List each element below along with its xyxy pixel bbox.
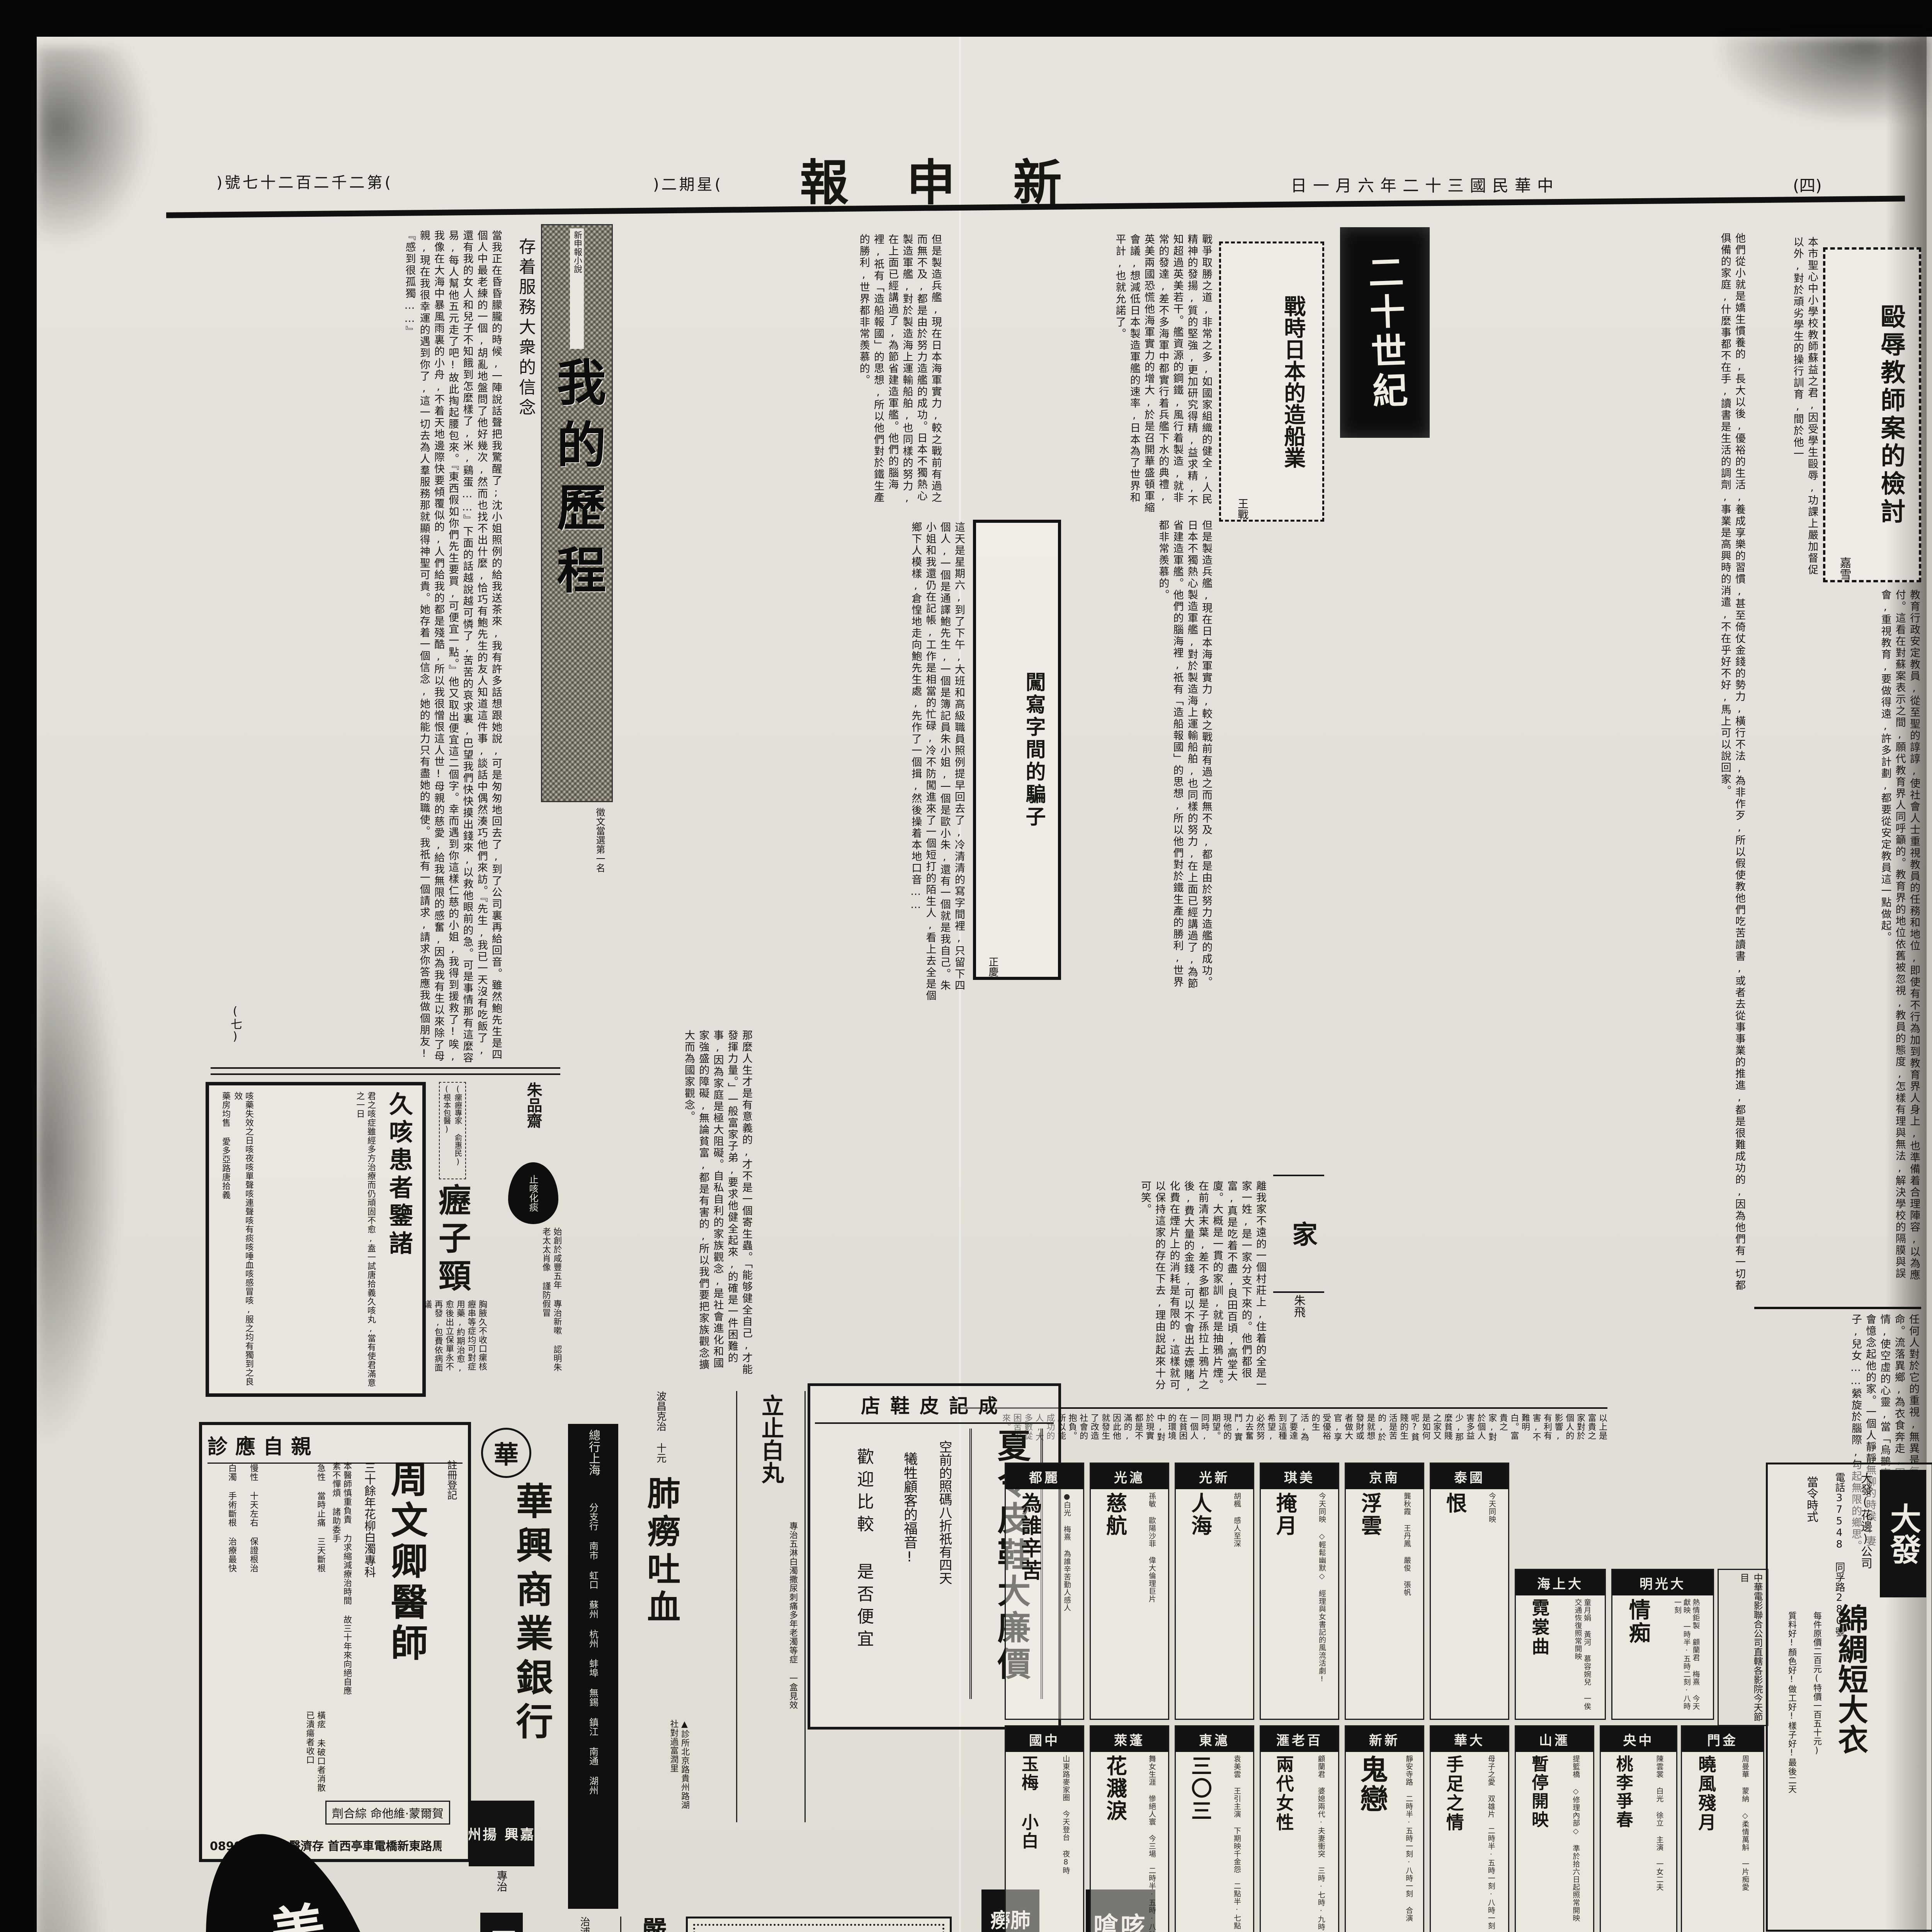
essay-title-jia: 家	[1273, 1175, 1324, 1293]
ad-note: 本醫師慎重負責 力求縮減療治時間 故三十年來向絕自應 素不憚煩 諸助委手	[286, 1462, 352, 1701]
ad-line: 空前的照碼八折祇有四天	[927, 1440, 954, 1687]
ad-line: 質料好!顏色好!做工好!樣子好!最後二天	[1776, 1611, 1797, 1897]
cinema-ad-penglai: 萊蓬 舞女生涯 慘絕人寰 今三場 二時半·五時·八時半花濺淚	[1090, 1725, 1169, 1932]
theater-name-badge: 光滬	[1091, 1464, 1168, 1489]
cinema-ad-lidu: 都麗 ●白光 梅熹 為誰辛苦勤人感人為誰辛苦	[1005, 1463, 1084, 1720]
novel-title: 我的歷程	[541, 357, 613, 801]
theater-name-badge: 明光大	[1612, 1570, 1713, 1595]
ad-yan-acupuncture: 嚴針灸 瘋科 先生四代醫瘋實驗確鑿 發百中祖傳按穴搜風	[623, 1917, 681, 1932]
ad-pre: 專治	[494, 1870, 509, 1913]
theater-name-badge: 新新	[1346, 1726, 1423, 1752]
cinema-ad-huishan: 山滙 提籃橋 ◇修理內部◇ 準於拾六日起照常開映暫停開映	[1515, 1725, 1594, 1932]
product-name: 綿綢短大衣	[1826, 1604, 1872, 1874]
ad-header: 診應自親	[207, 1430, 463, 1464]
theater-name-badge: 都麗	[1006, 1464, 1083, 1489]
doctor-specialty: 三十餘年花柳白濁專科	[358, 1462, 377, 1701]
cinema-ad-broadway: 滙老百 顧蘭君 婆媳兩代·夫妻衝突 三時·七時·九時一刻兩代女性	[1260, 1725, 1339, 1932]
cinema-ad-meiqi: 琪美 今天同映 ◇輕鬆幽默◇ 經理與女書記的風流活劇!掩月	[1260, 1463, 1339, 1720]
installment-marker: (七)	[220, 1005, 243, 1051]
bank-branch-strip: 總行上海 分支行 南市 虹口 蘇州 杭州 蚌埠 無錫 鎮江 南通 湖州	[568, 1424, 618, 1909]
theater-name-badge: 東滬	[1176, 1726, 1253, 1752]
film-note: 山東路麥家圈 今天登台 夜8時	[1061, 1755, 1070, 1932]
leaf-logo-text: 止咳化痰	[526, 1175, 540, 1212]
cinema-ad-guotai: 泰國 今天同映恨	[1430, 1463, 1509, 1720]
film-title: 桃李爭春	[1613, 1755, 1632, 1932]
essay-jia-body: 離我家不遠的一個村莊上,住着的全是一家一姓,是一家分支下來的。他們都很富,真是吃…	[1059, 1180, 1267, 1401]
film-title: 兩代女性	[1274, 1755, 1294, 1932]
product-name: 美迪肝片	[251, 1898, 364, 1932]
theater-name-badge: 華大	[1431, 1726, 1508, 1752]
film-chain-program-note: 中華電影聯合公司直轄各影院今天節目	[1718, 1569, 1769, 1726]
film-title: 玉梅 小白	[1019, 1755, 1038, 1932]
theater-name-badge: 光新	[1176, 1464, 1253, 1489]
ad-title: 癧子頸	[429, 1183, 476, 1297]
article-lead: 本市聖心中小學校教師蘇益之君,因受學生毆辱,功課上嚴加督促以外,對於頑劣學生的操…	[1757, 236, 1819, 577]
cinema-ad-xinguang: 光新 胡楓 感人至深人海	[1175, 1463, 1254, 1720]
column-divider	[1754, 1307, 1921, 1309]
film-title: 暫停開映	[1529, 1755, 1548, 1932]
ad-line: 犧牲顧客的福音!	[892, 1452, 919, 1668]
century-graphic-panel: 二十世紀	[1340, 227, 1430, 438]
film-title: 浮雲	[1358, 1492, 1381, 1716]
article-body: 教育行政安定教員,從至聖的諄諄,使社會人士重視教員的任務和地位,即使有不行為加到…	[1757, 589, 1921, 1300]
ad-tangshiyi-cough-pills: 久咳患者鑒諸 君之咳症雖經多方治療而仍頑固不愈,盍一試唐拾義久咳丸,當有使君滿意…	[206, 1082, 426, 1397]
ad-header: 牲犧貨底	[693, 1924, 944, 1932]
film-note: 周曼華 蒙納 ◇柔情萬斛 一片痴愛	[1740, 1755, 1750, 1932]
film-title: 手足之情	[1444, 1755, 1464, 1932]
cinema-ad-xinxin: 新新 靜安寺路 二時半·五時一刻·八時一刻 合演鬼戀	[1345, 1725, 1424, 1932]
article-title-box-shipbuilding: 戰時日本的造船業 王戰	[1219, 241, 1324, 522]
theater-name-badge: 琪美	[1261, 1464, 1338, 1489]
article-title-box-teacher-case: 毆辱教師案的檢討 嘉雪	[1823, 247, 1921, 582]
theater-name-badge: 萊蓬	[1091, 1726, 1168, 1752]
film-title: 為誰辛苦	[1018, 1492, 1041, 1716]
page-number: (四)	[1793, 173, 1855, 197]
article-title-box-swindler: 闖寫字間的騙子 正慶	[973, 520, 1061, 980]
cities-badge: 州揚 興嘉	[469, 1801, 534, 1866]
ad-items: 橫痃 未破口者消散 已潰瘍者收口	[210, 1711, 326, 1804]
theater-name-badge: 門金	[1682, 1726, 1763, 1752]
film-note: 母子之愛 双雄片 二時半·五時一刻·八時一刻	[1486, 1755, 1495, 1932]
ad-doctor-zhouwenqing: 診應自親 註冊登記 周文卿醫師 三十餘年花柳白濁專科 急性 當時止痛 三天斷根 …	[199, 1422, 471, 1862]
ad-title: 耳鼻科	[480, 1913, 523, 1932]
article-body-continued: 他們從小就是嬌生慣養的,長大以後,優裕的生活,養成享樂的習慣,甚至倚仗金錢的勢力…	[1445, 233, 1747, 1299]
newspaper-page-scan: )號七十二百二千二第( )二期星( 報申新 日一月六年二十三國民華中 (四) 毆…	[0, 0, 1932, 1932]
film-note: 顧蘭君 婆媳兩代·夫妻衝突 三時·七時·九時一刻	[1316, 1755, 1325, 1932]
theater-name-badge: 滙老百	[1261, 1726, 1338, 1752]
masthead-date: 日一月六年二十三國民華中	[1291, 173, 1804, 197]
ad-lizhi-white-pills: 立止白丸 專治五淋白濁撒尿刺痛多年老濁等症 一盒見效	[736, 1391, 806, 1822]
theater-name-badge: 泰國	[1431, 1464, 1508, 1489]
film-title: 花濺淚	[1103, 1755, 1126, 1932]
cinema-ad-huguang: 光滬 孫敏 歐陽沙菲 偉大倫理巨片慈航	[1090, 1463, 1169, 1720]
film-title: 曉風殘月	[1696, 1755, 1716, 1932]
article-title: 闖寫字間的騙子	[1019, 672, 1048, 828]
film-note: 靜安寺路 二時半·五時一刻·八時一刻 合演	[1404, 1755, 1413, 1932]
cinema-ad-daguangming: 明光大 熱情鉅製 顧蘭君 梅熹 今天獻映 一時半·五時二刻·八時一刻情痴	[1611, 1569, 1714, 1720]
cinema-ad-zhongyang: 央中 陳雲裳 白光 徐立 主演 一女二夫桃李爭春	[1600, 1725, 1677, 1932]
ad-zhupinzhai-pear-syrup: 朱品齋 止咳化痰 始創於咸豐五年 專治新嗽 認明朱老太太肖像 謹防假冒	[499, 1082, 567, 1378]
film-title: 情痴	[1626, 1599, 1650, 1716]
film-note: 今天同映	[1487, 1492, 1496, 1716]
theater-name-badge: 京南	[1346, 1464, 1423, 1489]
ad-line: 藥房均售 愛多亞路唐拾義	[215, 1092, 231, 1387]
bank-branches: 分支行 南市 虹口 蘇州 杭州 蚌埠 無錫 鎮江 南通 湖州	[587, 1503, 600, 1905]
ad-line: 專治五淋白濁撒尿刺痛多年老濁等症 一盒見效	[744, 1522, 798, 1819]
film-title: 掩月	[1273, 1492, 1296, 1716]
ad-fengke-zhujiaqiao: 治浦東 祝家橋大瘋科房 張嶺梅 老先生九代專治中風手足痛麻木半身不遂歪嘴瘋癱	[549, 1917, 621, 1932]
film-note: 袁美雲 王引主演 下期映千金怨 二點半·七點·九點	[1232, 1755, 1241, 1932]
cinema-ad-hudong: 東滬 袁美雲 王引主演 下期映千金怨 二點半·七點·九點三〇三	[1175, 1725, 1254, 1932]
ad-line: 君之咳症雖經多方治療而仍頑固不愈,盍一試唐拾義久咳丸,當有使君滿意之一日	[254, 1092, 376, 1387]
film-title: 恨	[1443, 1492, 1466, 1716]
theater-name-badge: 央中	[1601, 1726, 1676, 1752]
film-note: 胡楓 感人至深	[1232, 1492, 1241, 1716]
film-title: 霓裳曲	[1529, 1599, 1549, 1716]
novel-subtitle: 存着服務大衆的信念	[509, 238, 538, 597]
article-body: 戰爭取勝之道,非常之多,如國家組織的健全,人民精神的發揚,質的堅強,更加研究得精…	[947, 234, 1213, 514]
film-note: 陳雲裳 白光 徐立 主演 一女二夫	[1655, 1755, 1664, 1932]
company-big-name: 大發	[1880, 1470, 1926, 1597]
film-note: 龔秋霞 王丹鳳 嚴俊 張帆	[1402, 1492, 1411, 1716]
film-title: 慈航	[1103, 1492, 1126, 1716]
article-body-continued: 但是製造兵艦,現在日本海軍實力,較之戰前有過之而無不及,都是由於努力造艦的成功。…	[618, 234, 943, 513]
ad-line: 歡迎比較 是否便宜	[826, 1448, 876, 1687]
ad-title: 肺癆吐血	[637, 1476, 685, 1719]
film-note: 孫敏 歐陽沙菲 偉大倫理巨片	[1147, 1492, 1156, 1716]
ad-header: (瘰癧專家 俞惠民)(根本包醫)	[439, 1082, 466, 1179]
theater-name-badge: 海上大	[1516, 1570, 1605, 1595]
ad-dafa-lace-company: 大發 大發(花邊)公司 電話37548 同孚路280號 當令時式 綿綢短大衣 每…	[1766, 1463, 1932, 1932]
article-title: 戰時日本的造船業	[1277, 295, 1309, 468]
ad-tuberculosis-blood: 波昌克治 十元 肺癆吐血 ▲診所北京路貴州路湖社對過富潤里	[626, 1391, 696, 1816]
novel-banner: 新申報小說 我的歷程	[541, 224, 613, 802]
leaf-logo: 止咳化痰	[508, 1162, 558, 1224]
ad-brand: 朱品齋	[522, 1082, 544, 1159]
price-line: 每件原價二百元(特價一百五十元)	[1799, 1611, 1822, 1889]
ad-fountain-pen-sale: 牲犧貨底 美國製 14K 眞空管 派克式自來水筆 原價每支八十元 今天特價每支僅…	[686, 1917, 952, 1932]
ad-line: 咳藥失效之日咳夜咳單聲咳連聲咳有痰咳唾血咳感冒咳,服之均有獨到之良效	[231, 1092, 254, 1387]
essay-fragment: 那麼人生才是有意義的,才不是一個寄生蟲。「能够健全自己,才能發揮力量。」一般富家…	[568, 1030, 753, 1376]
weekday: )二期星(	[653, 172, 753, 197]
double-rule	[211, 1067, 560, 1075]
store-name: 店鞋皮記成	[815, 1391, 1054, 1424]
ad-ear-nose-clinic: 州揚 興嘉 專治 耳鼻科 周春庭醫生 寓法租界大世界對面久安里十七號	[460, 1801, 543, 1932]
doctor-name: 周文卿醫師	[383, 1460, 433, 1715]
blob-shape: 美迪肝片	[177, 1814, 437, 1932]
film-title: 三〇三	[1188, 1755, 1211, 1932]
issue-number: )號七十二百二千二第(	[216, 170, 464, 197]
ad-scrofula-neck: (瘰癧專家 俞惠民)(根本包醫) 癧子頸 胸腋久不收口瘰核癧串等症均可對症用藥,…	[410, 1082, 495, 1378]
ad-header: 波昌克治 十元	[654, 1391, 668, 1476]
century-graphic-text: 二十世紀	[1356, 253, 1413, 412]
film-note: 今天同映 ◇輕鬆幽默◇ 經理與女書記的風流活劇!	[1317, 1492, 1326, 1716]
scan-edge-left	[0, 0, 37, 1932]
article-body: 這天是星期六,到了下午,大班和高級職員照例提早回去了,冷清清的寫字間裡,只留下四…	[638, 522, 966, 1003]
ad-title: 嚴針灸	[633, 1917, 670, 1932]
ad-reg-label: 註冊登記	[435, 1460, 459, 1576]
film-title: 鬼戀	[1356, 1755, 1387, 1932]
ad-tags: 劑合綜 命他維·蒙爾賀	[325, 1801, 450, 1825]
film-note: 舞女生涯 慘絕人寰 今三場 二時半·五時·八時半	[1147, 1755, 1156, 1932]
novel-body: 當我正在昏昏朦朧的時候,一陣說話聲把我驚醒了;沈小姐照例的給我送茶來,我有許多話…	[217, 230, 503, 1065]
novel-series-tag: 新申報小說	[570, 228, 584, 349]
newspaper-title: 報申新	[800, 144, 1209, 206]
ad-line: ▲診所北京路貴州路湖社對過富潤里	[632, 1719, 690, 1816]
theater-name-badge: 山滙	[1516, 1726, 1593, 1752]
scan-edge-top	[0, 0, 1932, 37]
ad-items: 慢性 十天左右 保證根治	[239, 1464, 259, 1703]
ad-title: 立止白丸	[755, 1394, 787, 1522]
cinema-ad-zhongguo: 國中 山東路麥家圈 今天登台 夜8時玉梅 小白	[1005, 1725, 1084, 1932]
film-note: 提籃橋 ◇修理內部◇ 準於拾六日起照常開映	[1571, 1755, 1580, 1932]
cinema-ad-jinmen: 門金 周曼華 蒙納 ◇柔情萬斛 一片痴愛曉風殘月	[1681, 1725, 1764, 1932]
cinema-ad-nanjing: 京南 龔秋霞 王丹鳳 嚴俊 張帆浮雲	[1345, 1463, 1424, 1720]
cinema-ad-dashanghai: 海上大 童月娟 黃河 慕容婉兒 一俟交通恢復照常開映霓裳曲	[1515, 1569, 1606, 1720]
ad-line: 當令時式	[1800, 1476, 1820, 1592]
film-note: ●白光 梅熹 為誰辛苦勤人感人	[1062, 1492, 1071, 1716]
article-byline: 正慶	[986, 957, 1000, 977]
film-note: 熱情鉅製 顧蘭君 梅熹 今天獻映 一時半·五時二刻·八時一刻	[1672, 1599, 1700, 1716]
ad-line: 胸腋久不收口瘰核癧串等症均可對症用藥,約期治愈,愈後出立保單永不再發,包費依病面…	[418, 1300, 487, 1378]
ad-items: 白濁 手術斷根 治療最快	[218, 1464, 237, 1703]
article-byline: 嘉雪	[1836, 557, 1853, 580]
novel-series-tag2: 徵文當選第一名	[541, 808, 607, 885]
article-byline: 王戰	[1235, 498, 1250, 520]
film-title: 人海	[1188, 1492, 1211, 1716]
bank-hq: 總行上海	[585, 1429, 602, 1499]
essay-byline-jia: 朱飛	[1280, 1294, 1307, 1356]
bank-logo: 華	[481, 1428, 531, 1478]
cinema-ad-dahua: 華大 母子之愛 双雄片 二時半·五時一刻·八時一刻手足之情	[1430, 1725, 1509, 1932]
ad-pre: 治浦東	[577, 1917, 592, 1932]
article-title: 毆辱教師案的檢討	[1873, 304, 1909, 526]
theater-name-badge: 國中	[1006, 1726, 1083, 1752]
film-note: 童月娟 黃河 慕容婉兒 一俟交通恢復照常開映	[1573, 1599, 1592, 1716]
article-body-continued: 但是製造兵艦,現在日本海軍實力,較之戰前有過之而無不及,都是由於努力造艦的成功。…	[1063, 520, 1213, 995]
ad-meidi-liver-tablets: 劑合綜 命他維·蒙爾賀 美迪肝片 造血 健胃 滋補 強身 藥房公司均有出售 總發…	[166, 1797, 454, 1932]
ad-line: 始創於咸豐五年 專治新嗽 認明朱老太太肖像 謹防假冒	[504, 1227, 562, 1378]
